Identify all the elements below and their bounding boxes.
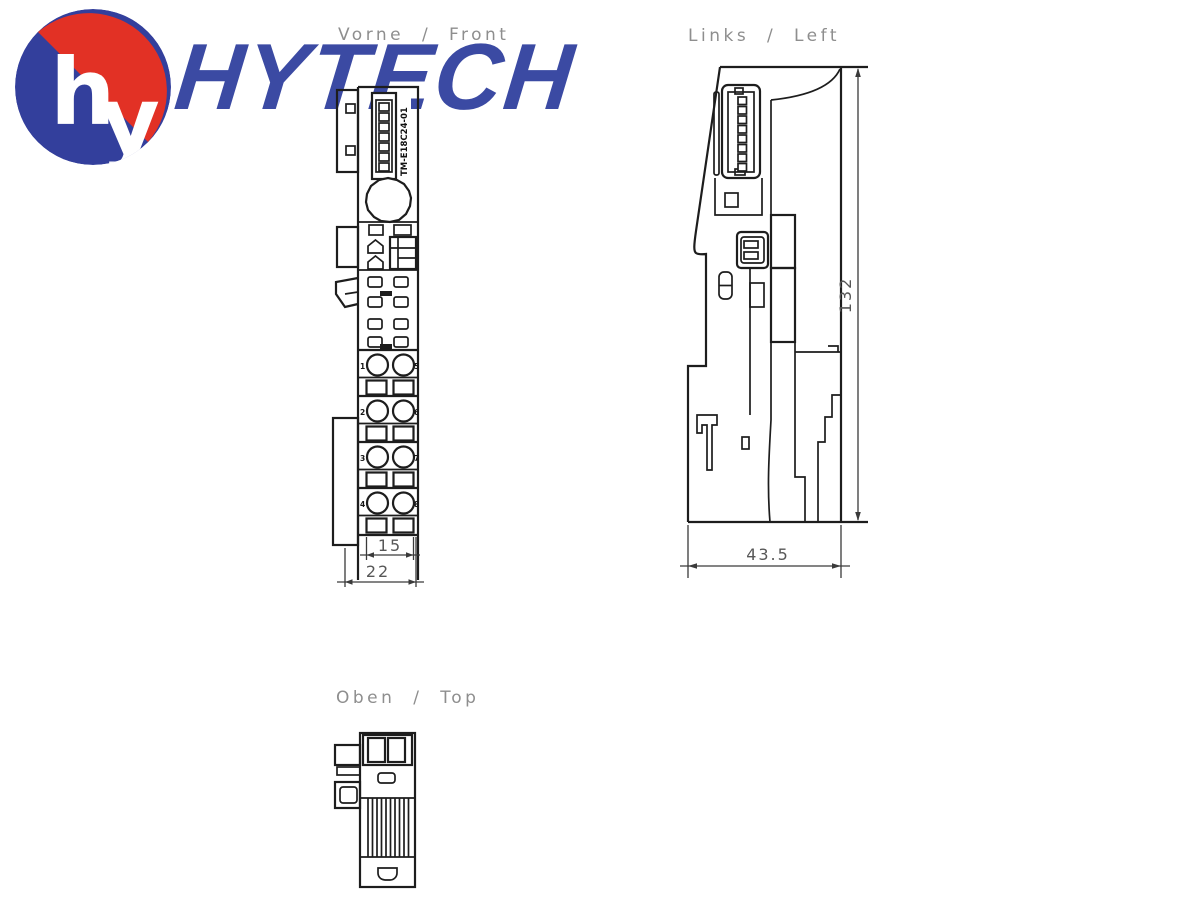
- front-dim-inner-width: 15: [360, 536, 420, 560]
- terminal-number: 1: [360, 362, 365, 371]
- left-view-drawing: 132 43.5: [665, 55, 877, 603]
- svg-text:15: 15: [378, 536, 402, 555]
- top-label-window: [378, 773, 395, 783]
- view-label-top: Oben / Top: [336, 688, 479, 708]
- svg-text:132: 132: [836, 277, 855, 314]
- terminal-number: 3: [360, 454, 365, 463]
- top-bus-connector: [363, 735, 412, 765]
- technical-drawing-page: h y HYTECH Vorne / Front Links / Left Ob…: [0, 0, 1200, 906]
- top-vent-grille: [360, 798, 415, 857]
- left-dim-height: 132: [836, 68, 861, 521]
- terminal-number: 2: [360, 408, 365, 417]
- front-status-led-grid: [368, 277, 408, 349]
- front-side-tab-bottom: [333, 418, 358, 545]
- brand-logo: h y: [12, 4, 174, 168]
- left-buttons: [719, 272, 732, 299]
- terminal-number: 6: [414, 408, 419, 417]
- front-side-tab-mid: [337, 227, 358, 267]
- front-side-tab-top: [337, 90, 358, 172]
- top-bottom-notch: [378, 868, 397, 880]
- left-din-rail-hook: [697, 415, 749, 470]
- terminal-number: 4: [360, 500, 365, 509]
- view-label-left: Links / Left: [688, 26, 840, 46]
- left-bus-connector: [714, 85, 760, 178]
- front-view-drawing: TM-E18C24-01: [323, 76, 437, 592]
- left-dim-depth: 43.5: [680, 525, 850, 578]
- module-code-label: TM-E18C24-01: [400, 107, 410, 176]
- terminal-number: 8: [414, 500, 419, 509]
- svg-text:43.5: 43.5: [746, 545, 790, 564]
- front-id-label-blob: [366, 178, 411, 222]
- terminal-number: 7: [414, 454, 419, 463]
- front-function-block: [358, 222, 418, 270]
- left-housing-step: [715, 178, 762, 215]
- svg-text:22: 22: [366, 562, 390, 581]
- front-release-lever: [336, 278, 358, 307]
- top-view-drawing: [325, 718, 457, 900]
- logo-monogram-y: y: [100, 67, 160, 168]
- left-latch-block: [737, 232, 768, 268]
- front-terminal-blocks: 1 5 2 6 3 7 4: [358, 350, 419, 535]
- top-side-tabs: [335, 745, 360, 808]
- terminal-number: 5: [414, 362, 419, 371]
